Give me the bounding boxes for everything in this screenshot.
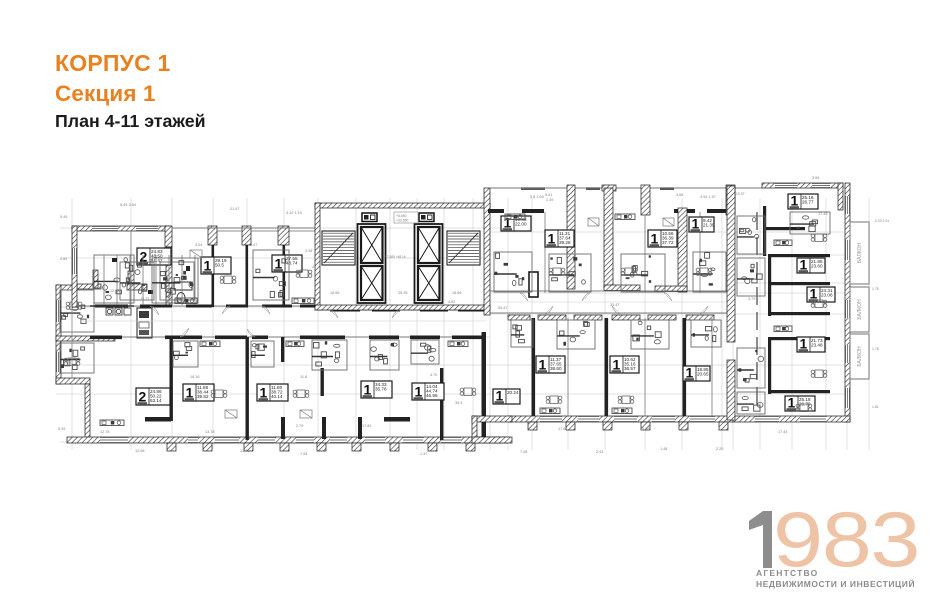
svg-text:2.39: 2.39 xyxy=(546,198,553,202)
svg-text:21.39: 21.39 xyxy=(703,223,715,228)
svg-text:38.60: 38.60 xyxy=(550,366,562,371)
svg-text:1: 1 xyxy=(275,256,283,272)
svg-text:2.47: 2.47 xyxy=(250,243,257,247)
svg-text:7.08: 7.08 xyxy=(520,450,527,454)
svg-text:5.49 3.84: 5.49 3.84 xyxy=(120,203,136,207)
svg-text:+7.485 +48.16: +7.485 +48.16 xyxy=(385,255,406,259)
svg-text:51.42: 51.42 xyxy=(151,258,163,263)
svg-text:12.08: 12.08 xyxy=(110,289,120,293)
svg-text:БАЛКОН: БАЛКОН xyxy=(857,242,863,263)
svg-text:12.77: 12.77 xyxy=(140,297,150,301)
svg-text:1: 1 xyxy=(613,357,621,373)
svg-text:2.20: 2.20 xyxy=(716,447,723,451)
svg-text:1: 1 xyxy=(788,395,796,411)
svg-text:1: 1 xyxy=(186,385,194,401)
svg-text:23.60: 23.60 xyxy=(811,264,823,269)
svg-text:3.8 1.65: 3.8 1.65 xyxy=(530,195,544,199)
svg-text:1: 1 xyxy=(204,258,212,274)
svg-text:3.19 1.19: 3.19 1.19 xyxy=(286,211,302,215)
svg-text:1: 1 xyxy=(686,365,694,381)
svg-text:48.74: 48.74 xyxy=(286,261,298,266)
svg-text:13.78: 13.78 xyxy=(240,449,250,453)
svg-text:36.57: 36.57 xyxy=(624,366,636,371)
svg-text:26.77: 26.77 xyxy=(802,200,814,205)
svg-text:37.72: 37.72 xyxy=(662,240,674,245)
svg-text:35.3: 35.3 xyxy=(455,401,462,405)
svg-text:3.79: 3.79 xyxy=(748,297,755,301)
svg-text:3.94 1.57: 3.94 1.57 xyxy=(700,195,716,199)
svg-text:35.78: 35.78 xyxy=(375,387,387,392)
svg-text:53.14: 53.14 xyxy=(150,398,162,403)
svg-text:7.08: 7.08 xyxy=(300,452,307,456)
svg-text:11.8: 11.8 xyxy=(300,375,307,379)
svg-text:1: 1 xyxy=(810,286,818,302)
svg-text:1.37: 1.37 xyxy=(420,452,427,456)
svg-text:16.66: 16.66 xyxy=(330,291,340,295)
svg-text:БАЛКОН: БАЛКОН xyxy=(857,299,863,320)
svg-text:39.28: 39.28 xyxy=(559,240,571,245)
svg-text:5.49: 5.49 xyxy=(58,427,65,431)
svg-text:2.79: 2.79 xyxy=(296,424,303,428)
svg-text:1: 1 xyxy=(364,382,372,398)
svg-text:17.81: 17.81 xyxy=(362,424,372,428)
svg-text:+8.650: +8.650 xyxy=(396,214,407,218)
svg-text:1: 1 xyxy=(496,388,504,404)
svg-text:17.43: 17.43 xyxy=(818,212,828,216)
svg-text:15.88: 15.88 xyxy=(640,427,650,431)
svg-text:1.78: 1.78 xyxy=(872,287,879,291)
svg-text:46.96: 46.96 xyxy=(426,393,438,398)
svg-text:4.70: 4.70 xyxy=(430,373,437,377)
svg-text:3.68: 3.68 xyxy=(676,193,683,197)
svg-text:20.24: 20.24 xyxy=(507,390,519,395)
svg-text:2.43: 2.43 xyxy=(596,450,603,454)
svg-text:12.78: 12.78 xyxy=(100,430,110,434)
svg-text:53.47: 53.47 xyxy=(498,306,508,310)
svg-text:23.48: 23.48 xyxy=(811,343,823,348)
svg-text:50.5: 50.5 xyxy=(215,263,224,268)
svg-text:3.04: 3.04 xyxy=(195,243,202,247)
svg-text:23.06: 23.06 xyxy=(821,293,833,298)
svg-text:39.82: 39.82 xyxy=(197,394,209,399)
svg-text:22.00: 22.00 xyxy=(515,222,527,227)
svg-text:4.62: 4.62 xyxy=(448,300,455,304)
svg-text:3.94: 3.94 xyxy=(812,176,819,180)
svg-text:3.38: 3.38 xyxy=(305,249,312,253)
svg-text:1: 1 xyxy=(260,385,268,401)
svg-text:2: 2 xyxy=(139,389,147,405)
svg-text:17.81: 17.81 xyxy=(558,427,568,431)
svg-text:1: 1 xyxy=(800,257,808,273)
svg-text:5.49: 5.49 xyxy=(60,215,67,219)
svg-text:+33.650: +33.650 xyxy=(396,219,408,223)
svg-text:2.84: 2.84 xyxy=(60,257,67,261)
svg-text:1: 1 xyxy=(651,231,659,247)
svg-text:20.65: 20.65 xyxy=(697,372,709,377)
svg-text:1.48: 1.48 xyxy=(660,447,667,451)
svg-text:1.81: 1.81 xyxy=(872,405,879,409)
svg-text:1: 1 xyxy=(548,231,556,247)
svg-text:1: 1 xyxy=(415,384,423,400)
svg-text:БАЛКОН: БАЛКОН xyxy=(857,346,863,367)
svg-text:13.78: 13.78 xyxy=(205,430,215,434)
svg-text:16.66: 16.66 xyxy=(452,291,462,295)
svg-text:1: 1 xyxy=(791,193,799,209)
svg-text:18.16: 18.16 xyxy=(190,375,200,379)
svg-text:4.41: 4.41 xyxy=(545,193,552,197)
svg-text:17.44: 17.44 xyxy=(778,430,788,434)
svg-text:21.47: 21.47 xyxy=(230,207,240,211)
svg-text:1.78: 1.78 xyxy=(872,347,879,351)
svg-text:12.08: 12.08 xyxy=(135,449,145,453)
svg-text:0.23 1.91: 0.23 1.91 xyxy=(875,219,889,223)
svg-text:10.97: 10.97 xyxy=(736,192,745,196)
svg-text:1: 1 xyxy=(539,357,547,373)
svg-text:1: 1 xyxy=(692,216,700,232)
svg-text:25.35: 25.35 xyxy=(398,291,408,295)
svg-text:40.14: 40.14 xyxy=(271,394,283,399)
svg-text:1: 1 xyxy=(800,336,808,352)
svg-text:33.47: 33.47 xyxy=(610,303,620,307)
